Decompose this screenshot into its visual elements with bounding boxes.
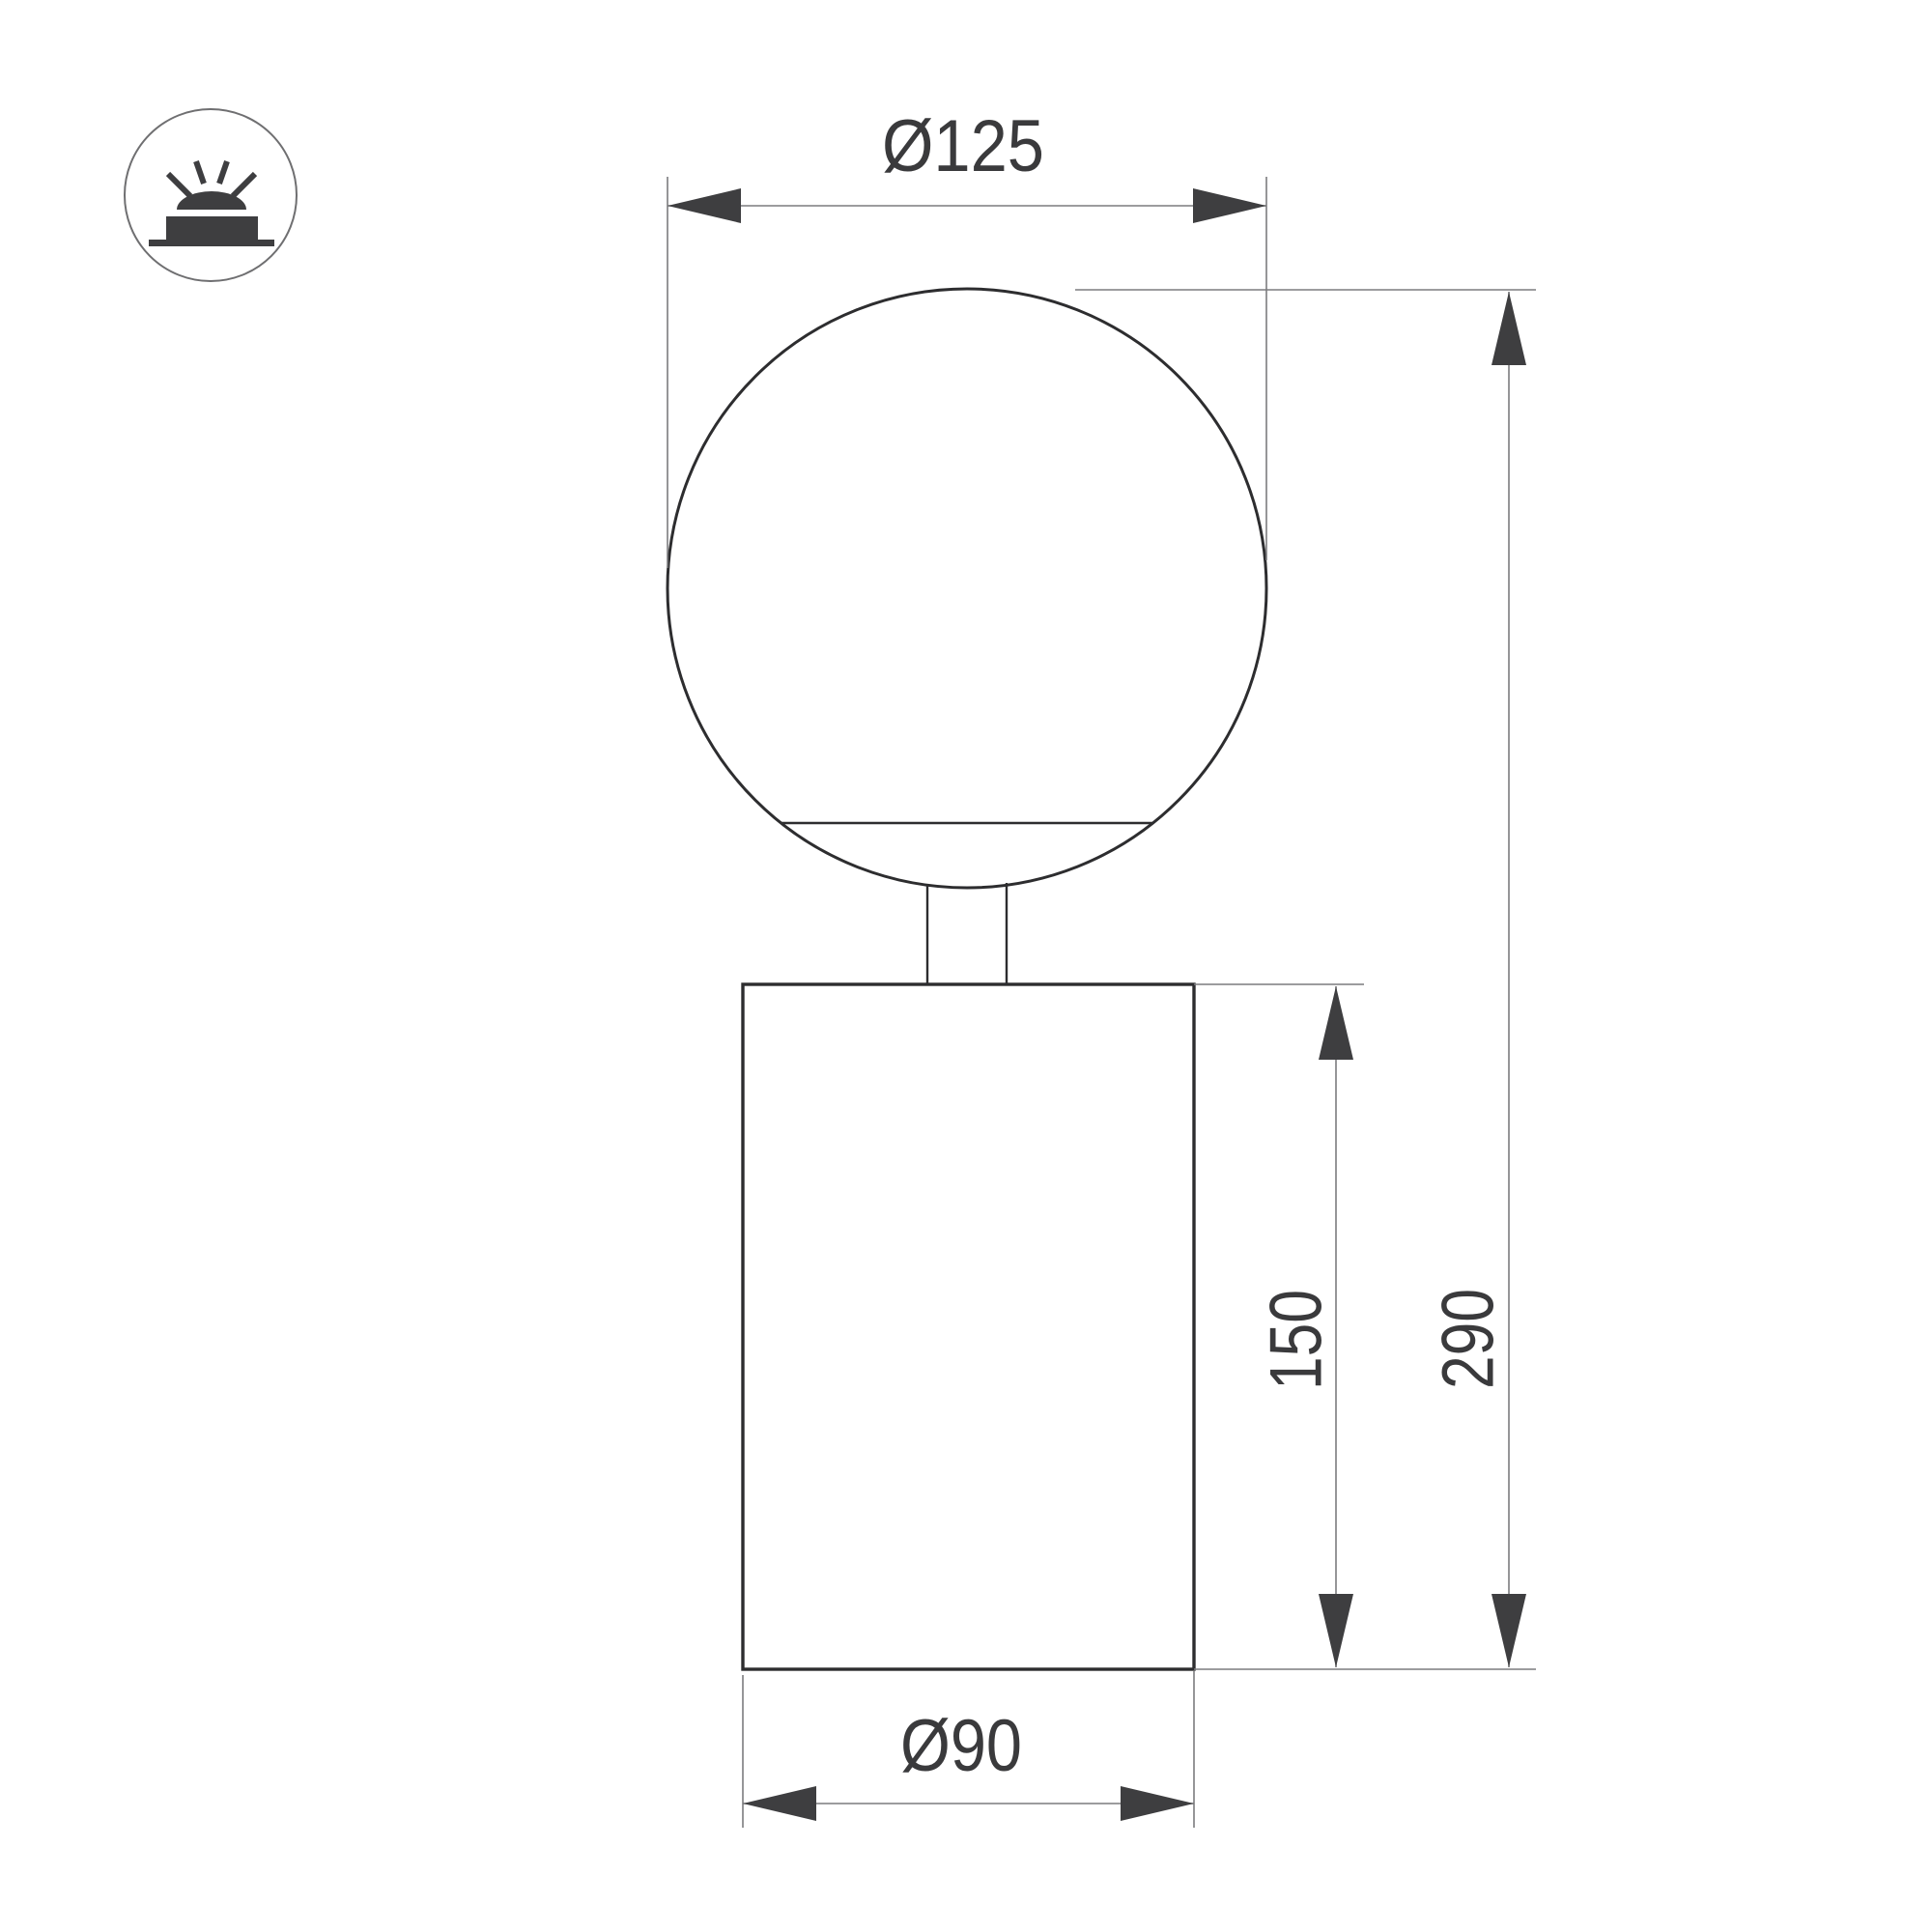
dimension-overall-height: 290: [1075, 290, 1536, 1669]
arrowhead-left: [743, 1786, 816, 1821]
cylinder-body-outline: [743, 984, 1194, 1669]
lamp-base-icon: [166, 216, 258, 241]
dimension-sphere-diameter: Ø125: [668, 105, 1266, 568]
dimension-base-diameter: Ø90: [743, 1671, 1194, 1828]
glass-sphere-outline: [668, 289, 1266, 888]
dim-label-base-height: 150: [1256, 1290, 1338, 1390]
arrowhead-down: [1319, 1594, 1353, 1667]
arrowhead-down: [1492, 1594, 1526, 1667]
dim-label-overall-height: 290: [1428, 1289, 1510, 1389]
surface-mounted-light-icon: [125, 109, 297, 281]
arrowhead-up: [1319, 986, 1353, 1060]
arrowhead-left: [668, 188, 741, 223]
arrowhead-up: [1492, 292, 1526, 365]
dimension-base-height: 150: [1194, 984, 1364, 1667]
arrowhead-right: [1121, 1786, 1194, 1821]
luminaire-drawing: [668, 289, 1266, 1669]
drawing-canvas: Ø125 290 150 Ø90: [0, 0, 1932, 1932]
dim-label-base-diameter: Ø90: [900, 1705, 1022, 1787]
mounting-surface-icon: [149, 240, 274, 246]
dim-label-sphere-diameter: Ø125: [882, 105, 1044, 187]
arrowhead-right: [1193, 188, 1266, 223]
